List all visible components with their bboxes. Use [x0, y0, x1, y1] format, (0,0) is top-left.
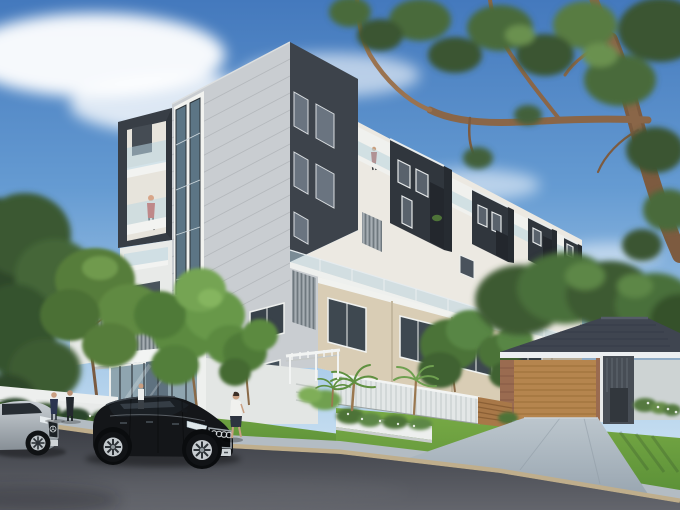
balcony-plant [432, 215, 442, 221]
front-door [610, 388, 628, 422]
garage-door [514, 360, 596, 420]
entry-recess [600, 356, 634, 424]
louvre-panel [292, 270, 316, 330]
architectural-render: Photorealistic architectural rendering: … [0, 0, 680, 510]
house-fascia [500, 352, 680, 358]
corner-balcony-box [118, 108, 172, 248]
mercedes-grille [48, 421, 58, 438]
person-at-lobby [138, 384, 144, 410]
